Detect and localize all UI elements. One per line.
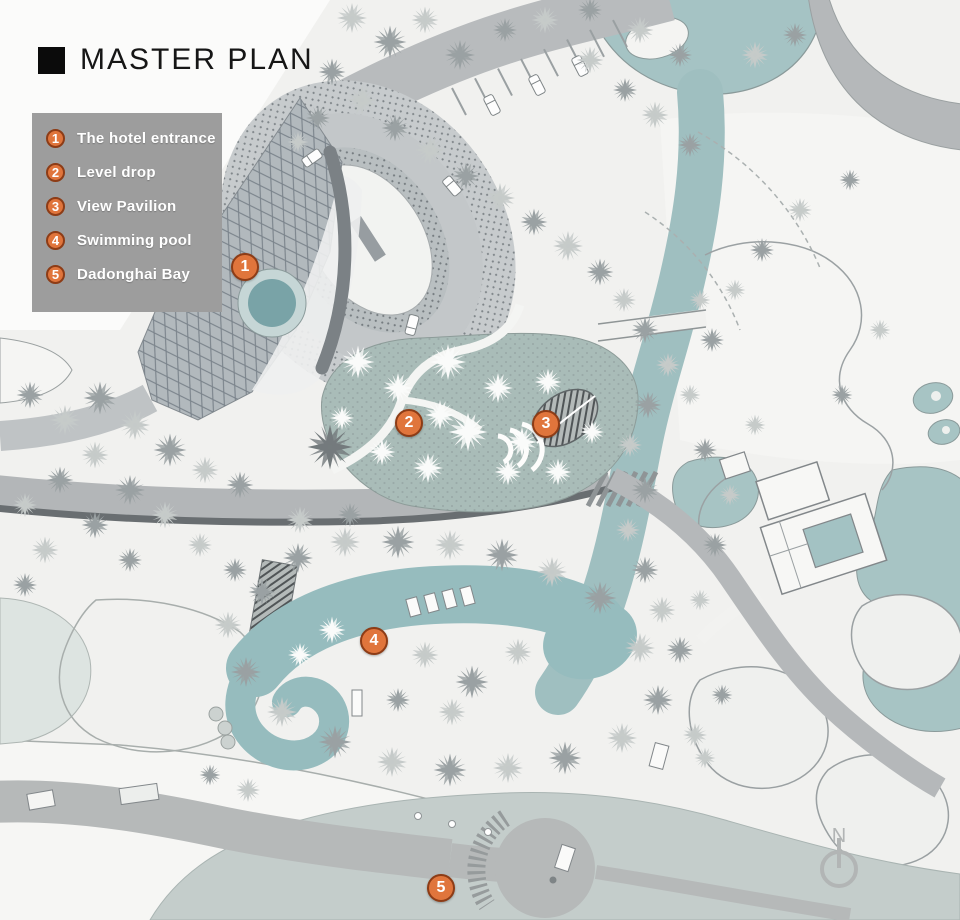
legend-item-label: View Pavilion [77,198,177,215]
title-block: MASTER PLAN [38,43,314,77]
legend-number-badge: 1 [46,129,65,148]
map-marker-swimming-pool: 4 [360,627,388,655]
map-marker-level-drop: 2 [395,409,423,437]
legend-item-label: Dadonghai Bay [77,266,190,283]
legend-panel: 1 The hotel entrance 2 Level drop 3 View… [32,113,222,312]
legend-item-view-pavilion: 3 View Pavilion [46,196,222,217]
north-arrow: N [817,826,861,902]
north-arrow-needle [837,838,841,868]
legend-item-label: Swimming pool [77,232,192,249]
legend-number-badge: 2 [46,163,65,182]
legend-item-swimming-pool: 4 Swimming pool [46,230,222,251]
legend-number-badge: 5 [46,265,65,284]
map-marker-dadonghai-bay: 5 [427,874,455,902]
legend-item-level-drop: 2 Level drop [46,162,222,183]
map-marker-hotel-entrance: 1 [231,253,259,281]
title-square-icon [38,47,65,74]
legend-number-badge: 3 [46,197,65,216]
page-title: MASTER PLAN [80,43,314,77]
legend-item-label: Level drop [77,164,156,181]
map-marker-view-pavilion: 3 [532,410,560,438]
legend-item-hotel-entrance: 1 The hotel entrance [46,128,222,149]
legend-item-dadonghai-bay: 5 Dadonghai Bay [46,264,222,285]
legend-number-badge: 4 [46,231,65,250]
master-plan-canvas: MASTER PLAN 1 The hotel entrance 2 Level… [0,0,960,920]
legend-item-label: The hotel entrance [77,130,216,147]
